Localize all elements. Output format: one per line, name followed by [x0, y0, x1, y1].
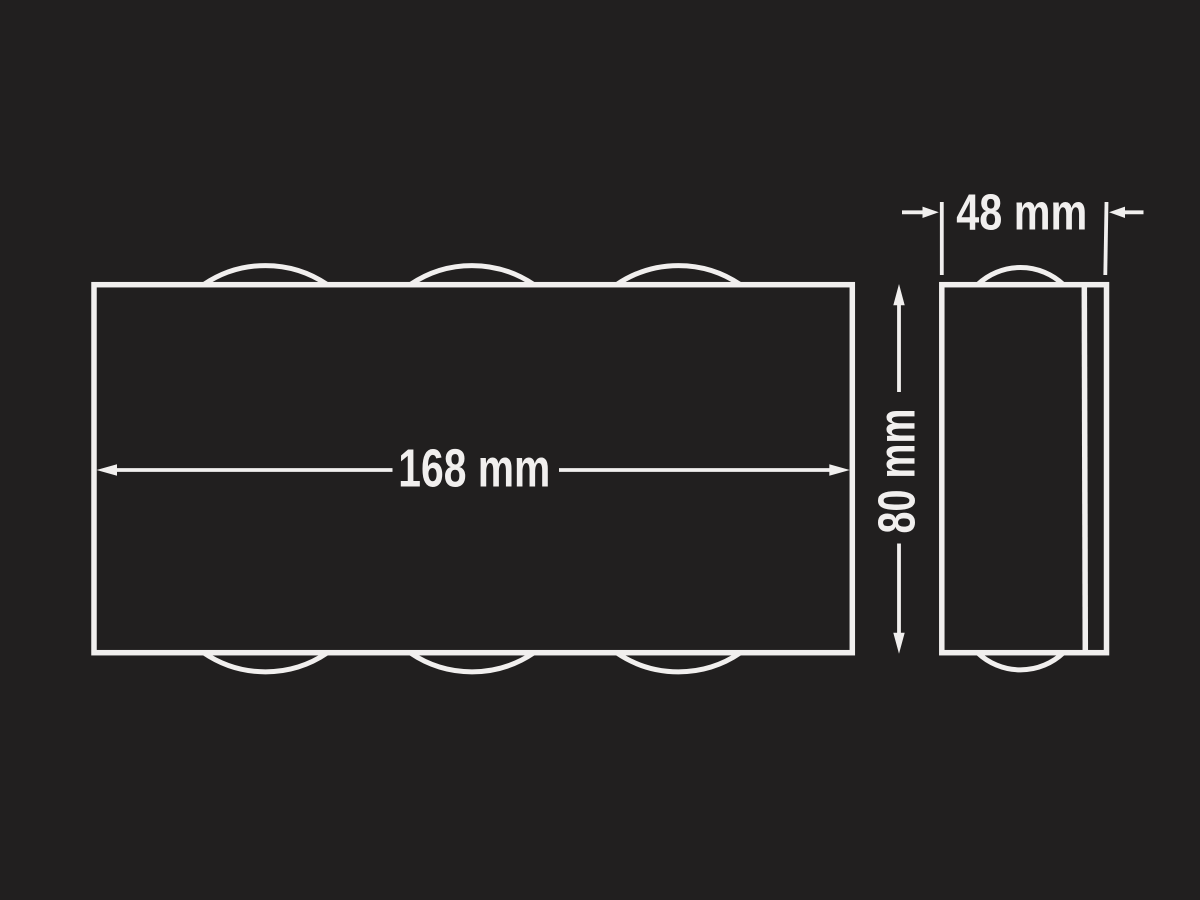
svg-text:48 mm: 48 mm — [956, 184, 1087, 241]
svg-text:80 mm: 80 mm — [869, 409, 927, 534]
svg-text:168 mm: 168 mm — [398, 439, 550, 499]
